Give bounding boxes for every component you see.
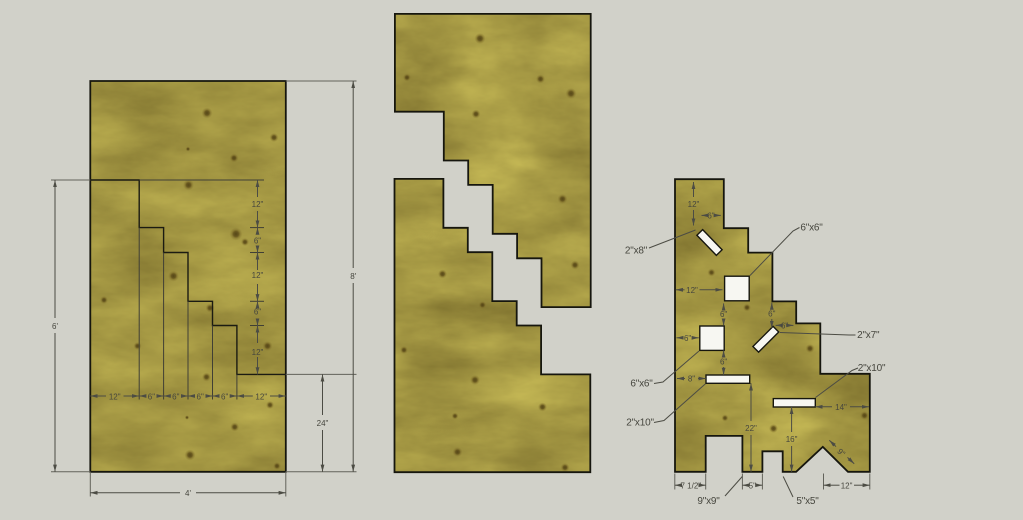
svg-text:6": 6" — [768, 310, 775, 319]
svg-text:7 1/2": 7 1/2" — [680, 482, 701, 491]
svg-text:6": 6" — [221, 393, 228, 402]
svg-text:2"x10": 2"x10" — [858, 363, 886, 374]
svg-text:12": 12" — [109, 393, 121, 402]
svg-text:6": 6" — [172, 393, 179, 402]
svg-text:6": 6" — [720, 358, 727, 367]
svg-text:9"x9": 9"x9" — [697, 496, 720, 507]
svg-text:24": 24" — [317, 419, 329, 428]
svg-text:2"x7": 2"x7" — [857, 330, 880, 341]
svg-text:8': 8' — [350, 272, 356, 281]
svg-text:6": 6" — [197, 393, 204, 402]
svg-text:12": 12" — [688, 200, 700, 209]
svg-text:16": 16" — [786, 435, 798, 444]
svg-text:6"x6": 6"x6" — [630, 379, 653, 390]
svg-text:6": 6" — [720, 310, 727, 319]
svg-text:12": 12" — [841, 482, 853, 491]
svg-text:4': 4' — [185, 489, 191, 498]
svg-text:6"x6": 6"x6" — [800, 223, 823, 234]
svg-text:6": 6" — [684, 334, 691, 343]
svg-text:5": 5" — [749, 482, 756, 491]
svg-text:6": 6" — [254, 237, 261, 246]
svg-text:6": 6" — [254, 308, 261, 317]
svg-text:6': 6' — [52, 322, 58, 331]
svg-text:12": 12" — [252, 271, 264, 280]
svg-text:2"x10": 2"x10" — [626, 418, 654, 429]
svg-text:12": 12" — [252, 348, 264, 357]
svg-text:12": 12" — [686, 286, 698, 295]
svg-text:14": 14" — [835, 403, 847, 412]
svg-text:5"x5": 5"x5" — [796, 496, 819, 507]
svg-text:12": 12" — [252, 200, 264, 209]
svg-text:6": 6" — [781, 322, 788, 331]
svg-text:6": 6" — [707, 212, 714, 221]
svg-text:22": 22" — [745, 424, 757, 433]
svg-text:2"x8": 2"x8" — [625, 246, 648, 257]
svg-text:6": 6" — [148, 393, 155, 402]
svg-text:8": 8" — [688, 375, 695, 384]
svg-text:12": 12" — [255, 393, 267, 402]
